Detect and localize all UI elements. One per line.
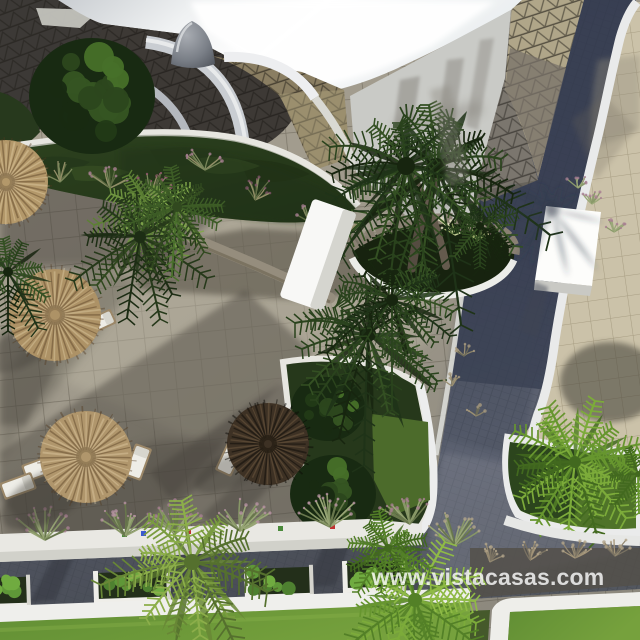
svg-text:www.vistacasas.com: www.vistacasas.com — [371, 564, 605, 590]
